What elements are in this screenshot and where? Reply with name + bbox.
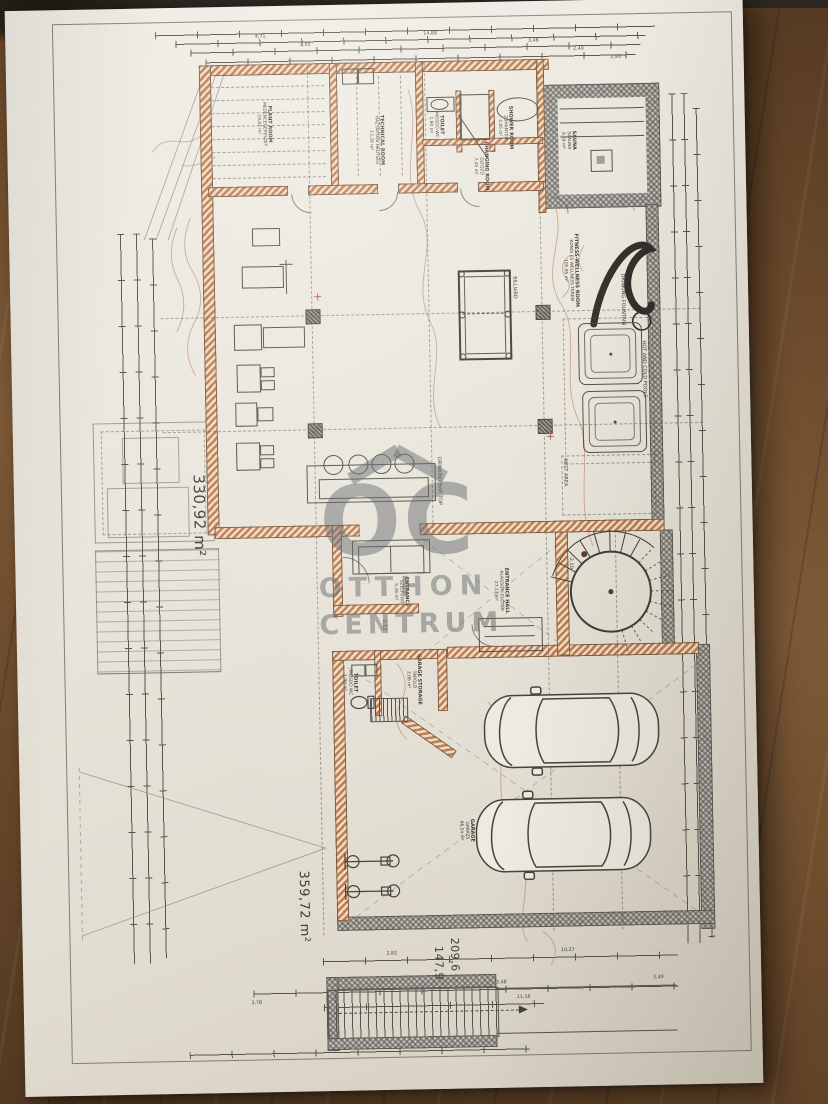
gym-machine-pad: [260, 458, 274, 468]
gym-machine-pad: [261, 380, 275, 390]
room-label-shower: SHOWER ROOM ZUHANYZÓ 4,85 m²: [498, 106, 515, 150]
billiard-inner-rail: [464, 276, 506, 355]
room-name-en: CHANGING ROOM: [483, 141, 490, 190]
room-label-toilet-top: TOILET MOSDÓ-WC 1,90 m²: [429, 112, 446, 138]
car-icon: [473, 787, 655, 882]
room-name-hu: SZAUNA: [566, 131, 571, 149]
room-label-plant: PLANT ROOM MEDENCEGÉPÉSZET 19,87 m²: [256, 102, 273, 146]
room-name-hu: MOSDÓ-WC: [434, 112, 440, 138]
gym-treadmill-seat: [234, 324, 262, 351]
storage-shelf-grill: [370, 698, 408, 723]
room-label-sauna: SAUNA SZAUNA 9,58 m²: [561, 131, 577, 151]
billiard-pocket: [504, 270, 511, 277]
survey-cross-mark: [314, 293, 321, 300]
room-name-hu: TÁROLÓ: [411, 671, 416, 688]
room-label-hall: ENTRANCE HALL ALAGSORI ELŐTÉR 27,13 m²: [493, 568, 510, 614]
gym-machine-pad: [260, 445, 274, 455]
room-area: 7,45 m²: [474, 158, 479, 175]
wall-fitness-north-1: [208, 186, 288, 198]
paper-sheet: 4,71 3,05 14,88 3,48 2,40 2,93 3,78 2,82…: [5, 0, 764, 1097]
garage-level-area-text: 359,72 m²: [296, 870, 312, 942]
gym-machine: [236, 364, 261, 392]
room-name-hu: ZUHANYZÓ: [503, 115, 509, 140]
room-area: 13,39 m²: [369, 130, 374, 150]
level-marker-stair: -2,10: [568, 556, 574, 569]
hot-pool: [578, 322, 643, 385]
level-value: -2,12: [381, 618, 387, 631]
room-label-storage: GARAGE STORAGE TÁROLÓ 2,06 m²: [406, 654, 423, 705]
lower-terrace-decking: [95, 548, 221, 674]
room-name-en: ENTRANCE: [404, 577, 410, 607]
structural-column: [535, 305, 550, 320]
boiler-unit: [358, 68, 374, 84]
structural-column: [538, 419, 553, 434]
room-label-fitness: FITNESS-WELLNESS ROOM KONDI ÉS WELLNESS …: [563, 233, 580, 307]
wall-storage-right: [437, 649, 448, 711]
room-name-hu: GARÁZS: [464, 821, 469, 839]
room-name-en: GARAGE STORAGE: [416, 654, 423, 705]
gym-machine-pad: [257, 407, 273, 421]
overall-dimension-1: 209,6: [448, 938, 462, 972]
survey-cross-mark: [547, 433, 554, 440]
cold-pool: [582, 390, 647, 453]
room-area: 105,95 m²: [563, 259, 569, 282]
room-name-hu: ÖLTÖZŐ: [479, 157, 484, 175]
room-name-en: SAUNA: [571, 131, 577, 150]
room-area: 9,58 m²: [561, 132, 566, 149]
boiler-unit: [342, 68, 358, 84]
room-area: 4,85 m²: [498, 119, 503, 136]
gym-machine-bench: [242, 266, 284, 289]
stair-walkline-arrow: [519, 1005, 528, 1013]
room-name-en: TOILET: [439, 115, 445, 134]
pools-label: HOT AND COLD POOLS: [641, 340, 648, 397]
room-label-entrance: ENTRANCE SZÉLFOGÓ 5,36 m²: [394, 577, 411, 607]
room-label-technical: TECHNICAL ROOM HÁZTARTÁSI HELYISÉG 13,39…: [369, 115, 386, 165]
terrace-panel: [107, 487, 190, 539]
room-name-en: GARAGE: [469, 819, 475, 842]
level-value: -2,10: [568, 556, 574, 569]
car-icon: [481, 683, 663, 778]
rest-area-dashed-zone: [561, 454, 656, 516]
room-area: 19,87 m²: [257, 114, 262, 134]
room-area: 1,90 m²: [342, 674, 347, 691]
structural-column: [305, 309, 320, 324]
billiard-pocket: [505, 353, 512, 360]
bar-counter-inner: [319, 477, 429, 499]
feature-text: BILLIARD: [512, 276, 518, 299]
billiard-pocket: [504, 311, 511, 318]
room-area: 5,36 m²: [394, 583, 399, 600]
billiard-label: BILLIARD: [512, 276, 518, 299]
gym-machine: [235, 402, 257, 426]
shower-tray: [459, 94, 490, 141]
fountain-label: DRINKING FOUNTAIN: [620, 274, 627, 326]
level-marker-entrance: -2,12: [381, 618, 387, 631]
room-name-en: SHOWER ROOM: [508, 106, 515, 150]
billiard-pocket: [458, 311, 465, 318]
room-name-hu: HÁZTARTÁSI HELYISÉG: [374, 116, 380, 165]
gym-machine-top: [252, 228, 280, 247]
room-name-en: PLANT ROOM: [267, 106, 274, 143]
room-name-en: TOILET: [353, 673, 359, 692]
gym-treadmill-mat: [263, 326, 305, 348]
billiard-table: [458, 270, 513, 361]
bar-label: DRINKING BAR TOP: [436, 457, 443, 505]
pool-drain: [613, 420, 616, 423]
photo-of-floor-plan: { "scene": { "description": "Photographe…: [0, 0, 828, 1104]
gym-machine-pad: [261, 367, 275, 377]
gym-machine: [236, 442, 261, 470]
room-name-hu: KONDI ÉS WELLNESS TEREM: [568, 239, 574, 301]
overall-dimension-2: 147,9: [432, 946, 446, 980]
room-area: 2,06 m²: [406, 671, 411, 688]
room-area: 1,90 m²: [429, 116, 434, 133]
room-name-hu: ALAGSORI ELŐTÉR: [499, 570, 505, 611]
room-area: 66,54 m²: [459, 821, 464, 841]
spiral-staircase: [550, 527, 676, 653]
wall-fitness-north-2: [308, 184, 378, 195]
room-label-toilet-garage: TOILET MOSDÓ WC 1,90 m²: [342, 670, 359, 696]
wall-fitness-north-3: [398, 183, 458, 194]
room-label-changing: CHANGING ROOM ÖLTÖZŐ 7,45 m²: [473, 141, 490, 190]
wellness-level-area-text: 330,92 m²: [190, 474, 210, 557]
storage-sink: [365, 664, 377, 676]
feature-text: REST AREA: [562, 459, 568, 487]
structural-column: [308, 423, 323, 438]
room-name-hu: SZÉLFOGÓ: [399, 580, 405, 604]
feature-text: HOT AND COLD POOLS: [641, 340, 648, 397]
room-name-hu: MEDENCEGÉPÉSZET: [262, 102, 268, 146]
feature-text: DRINKING BAR TOP: [436, 457, 443, 505]
room-label-garage: GARAGE GARÁZS 66,54 m²: [459, 819, 476, 842]
feature-text: DRINKING FOUNTAIN: [620, 274, 627, 326]
rest-area-label: REST AREA: [562, 459, 568, 487]
sauna-stove-core: [597, 156, 605, 164]
pool-drain: [609, 352, 612, 355]
terrace-panel: [122, 437, 180, 484]
room-name-hu: MOSDÓ WC: [347, 670, 353, 695]
billiard-pocket: [459, 353, 466, 360]
room-area: 27,13 m²: [494, 581, 499, 601]
bicycle-icons: [341, 846, 412, 909]
